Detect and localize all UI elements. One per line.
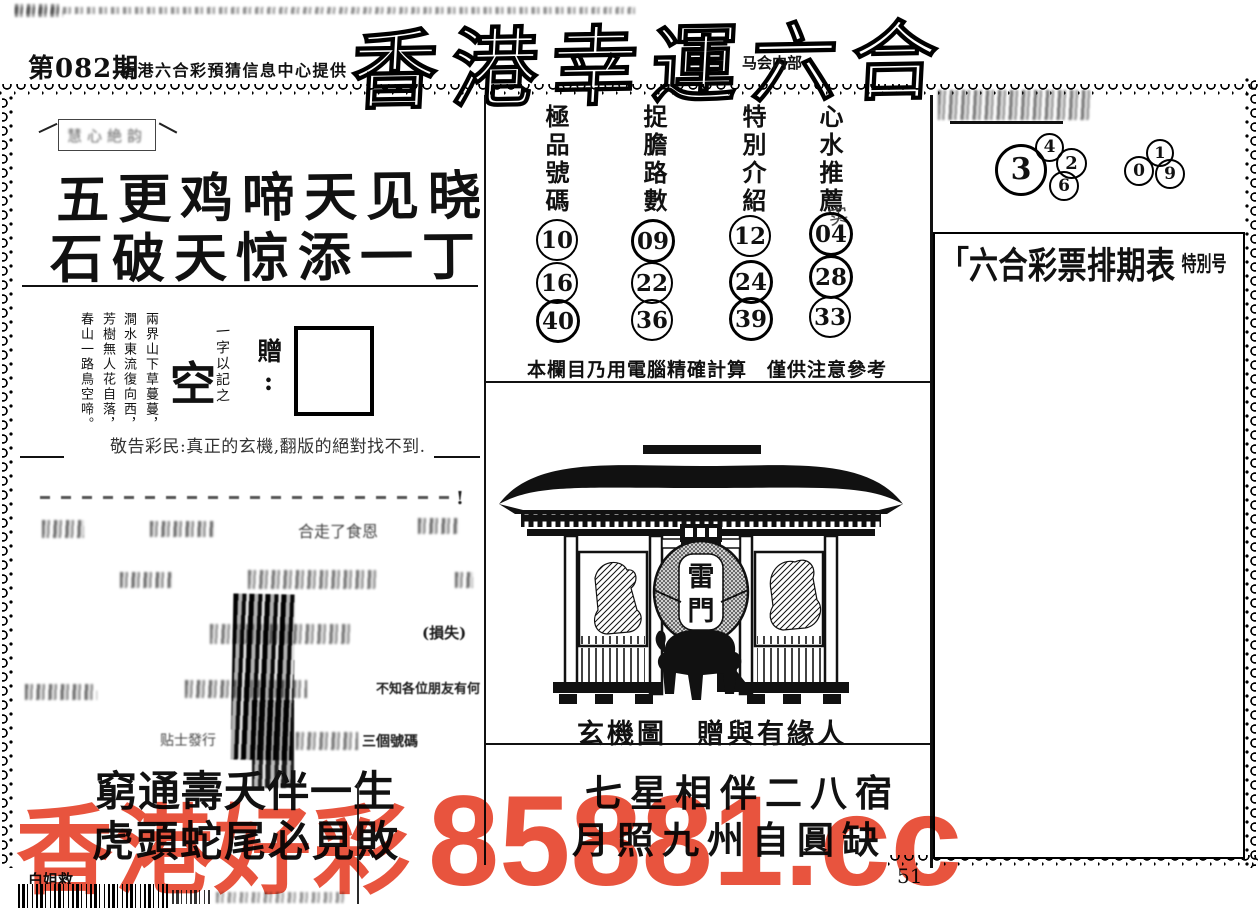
pick-circle: 6 [1049, 171, 1079, 201]
number-circle: 10 [536, 219, 578, 261]
fragment-excl: ! [456, 488, 464, 509]
smudge-6 [455, 572, 473, 588]
main-verse-line2: 石破天惊添一丁 [50, 214, 485, 293]
temple-gate-illustration: 雷 門 [495, 440, 907, 708]
roof [499, 465, 903, 504]
number-circle: 40 [536, 299, 580, 343]
schedule-box-title: 六合彩票排期表 [969, 237, 1176, 290]
mystic-caption: 玄機圖 贈與有緣人 [577, 712, 847, 751]
animal-silhouette [658, 630, 741, 700]
smudge-5 [248, 570, 376, 589]
fragment-4: 贴士發行 [160, 730, 216, 750]
number-circle: 04 [809, 212, 853, 256]
hint-character: 空 [170, 348, 216, 414]
smudge-8 [25, 684, 97, 700]
label-tick-right [159, 122, 178, 133]
smudge-10 [296, 732, 358, 750]
left-statue [595, 562, 642, 634]
fragment-3: 不知各位朋友有何 [376, 678, 480, 697]
number-circle: 33 [809, 296, 851, 338]
warning-line: 敬告彩民:真正的玄機,翻版的絕對找不到. [110, 432, 426, 457]
center-rule-2 [485, 743, 930, 745]
column-header-1: 極品號碼 [538, 104, 573, 216]
smudge-3 [418, 518, 458, 534]
column-header-2: 捉膽路數 [636, 104, 671, 216]
gift-blank-box [294, 326, 374, 416]
rule-seg-left [20, 456, 64, 458]
smudge-4 [120, 572, 172, 588]
lantern-char-bottom: 門 [688, 596, 715, 627]
fragment-5: 三個號碼 [362, 731, 418, 751]
rule-seg-right [434, 456, 480, 458]
number-circle: 22 [631, 262, 673, 304]
masthead-subtitle: 马会内部 [742, 52, 804, 73]
rule-under-verse [22, 285, 478, 287]
lantern-char-top: 雷 [688, 562, 715, 593]
column [565, 536, 577, 688]
poem-line-3: 芳樹無人花自落， [98, 312, 117, 434]
top-faded-print-blob [15, 4, 63, 17]
number-circle: 09 [631, 219, 675, 263]
fragment-2: (損失) [422, 622, 466, 643]
left-slats [581, 648, 645, 682]
poem-line-4: 春山一路鳥空啼。 [76, 312, 95, 434]
smudged-heading [938, 90, 1090, 120]
label-tick-left [39, 123, 58, 133]
label-box: 慧心絶韵 [58, 119, 156, 151]
pick-circle: 9 [1155, 159, 1185, 189]
hint-note: 一字以記之 [212, 323, 232, 428]
label-box-text: 慧心絶韵 [67, 125, 147, 146]
number-circle: 36 [631, 299, 673, 341]
poem-line-2: 澗水東流復向西， [119, 312, 138, 434]
fragment-1: 合走了食恩 [298, 518, 378, 542]
schedule-box-bracket: 「 [939, 248, 969, 278]
roof-ridge [643, 445, 761, 454]
right-base [741, 682, 849, 693]
faded-dotted-row [40, 496, 452, 499]
schedule-box: 「 六合彩票排期表 特別号 [933, 232, 1245, 859]
center-rule-1 [485, 381, 930, 383]
watermark-code: 85881.cc [428, 778, 962, 906]
column [825, 536, 837, 688]
schedule-box-title-suffix: 特別号 [1182, 248, 1227, 277]
right-statue [770, 560, 820, 630]
provider-line: 香港六合彩預猜信息中心提供 [120, 57, 348, 81]
number-circle: 16 [536, 262, 578, 304]
smudge-2 [150, 521, 214, 537]
smudge-1 [42, 520, 84, 538]
left-base [553, 682, 661, 693]
number-circle: 12 [729, 215, 771, 257]
number-circle: 28 [809, 255, 853, 299]
smudged-heading-underline [950, 121, 1063, 124]
watermark-cjk: 香港好彩 [16, 803, 412, 900]
pick-circle: 0 [1124, 156, 1154, 186]
right-slats [757, 648, 821, 682]
number-circle: 39 [729, 297, 773, 341]
computer-note: 本欄目乃用電腦精確計算 僅供注意參考 [484, 355, 930, 382]
right-lace-border [1245, 78, 1256, 868]
red-watermark: 香港好彩 85881.cc [16, 778, 962, 906]
column-header-3: 特別介紹 [735, 104, 770, 216]
tip-sheet-page: 第082期 香港六合彩預猜信息中心提供 香港幸運六合 马会内部 慧心絶韵 五更鸡… [0, 0, 1258, 912]
poem-line-1: 兩界山下草蔓蔓， [141, 312, 160, 434]
left-lace-border [2, 96, 13, 868]
